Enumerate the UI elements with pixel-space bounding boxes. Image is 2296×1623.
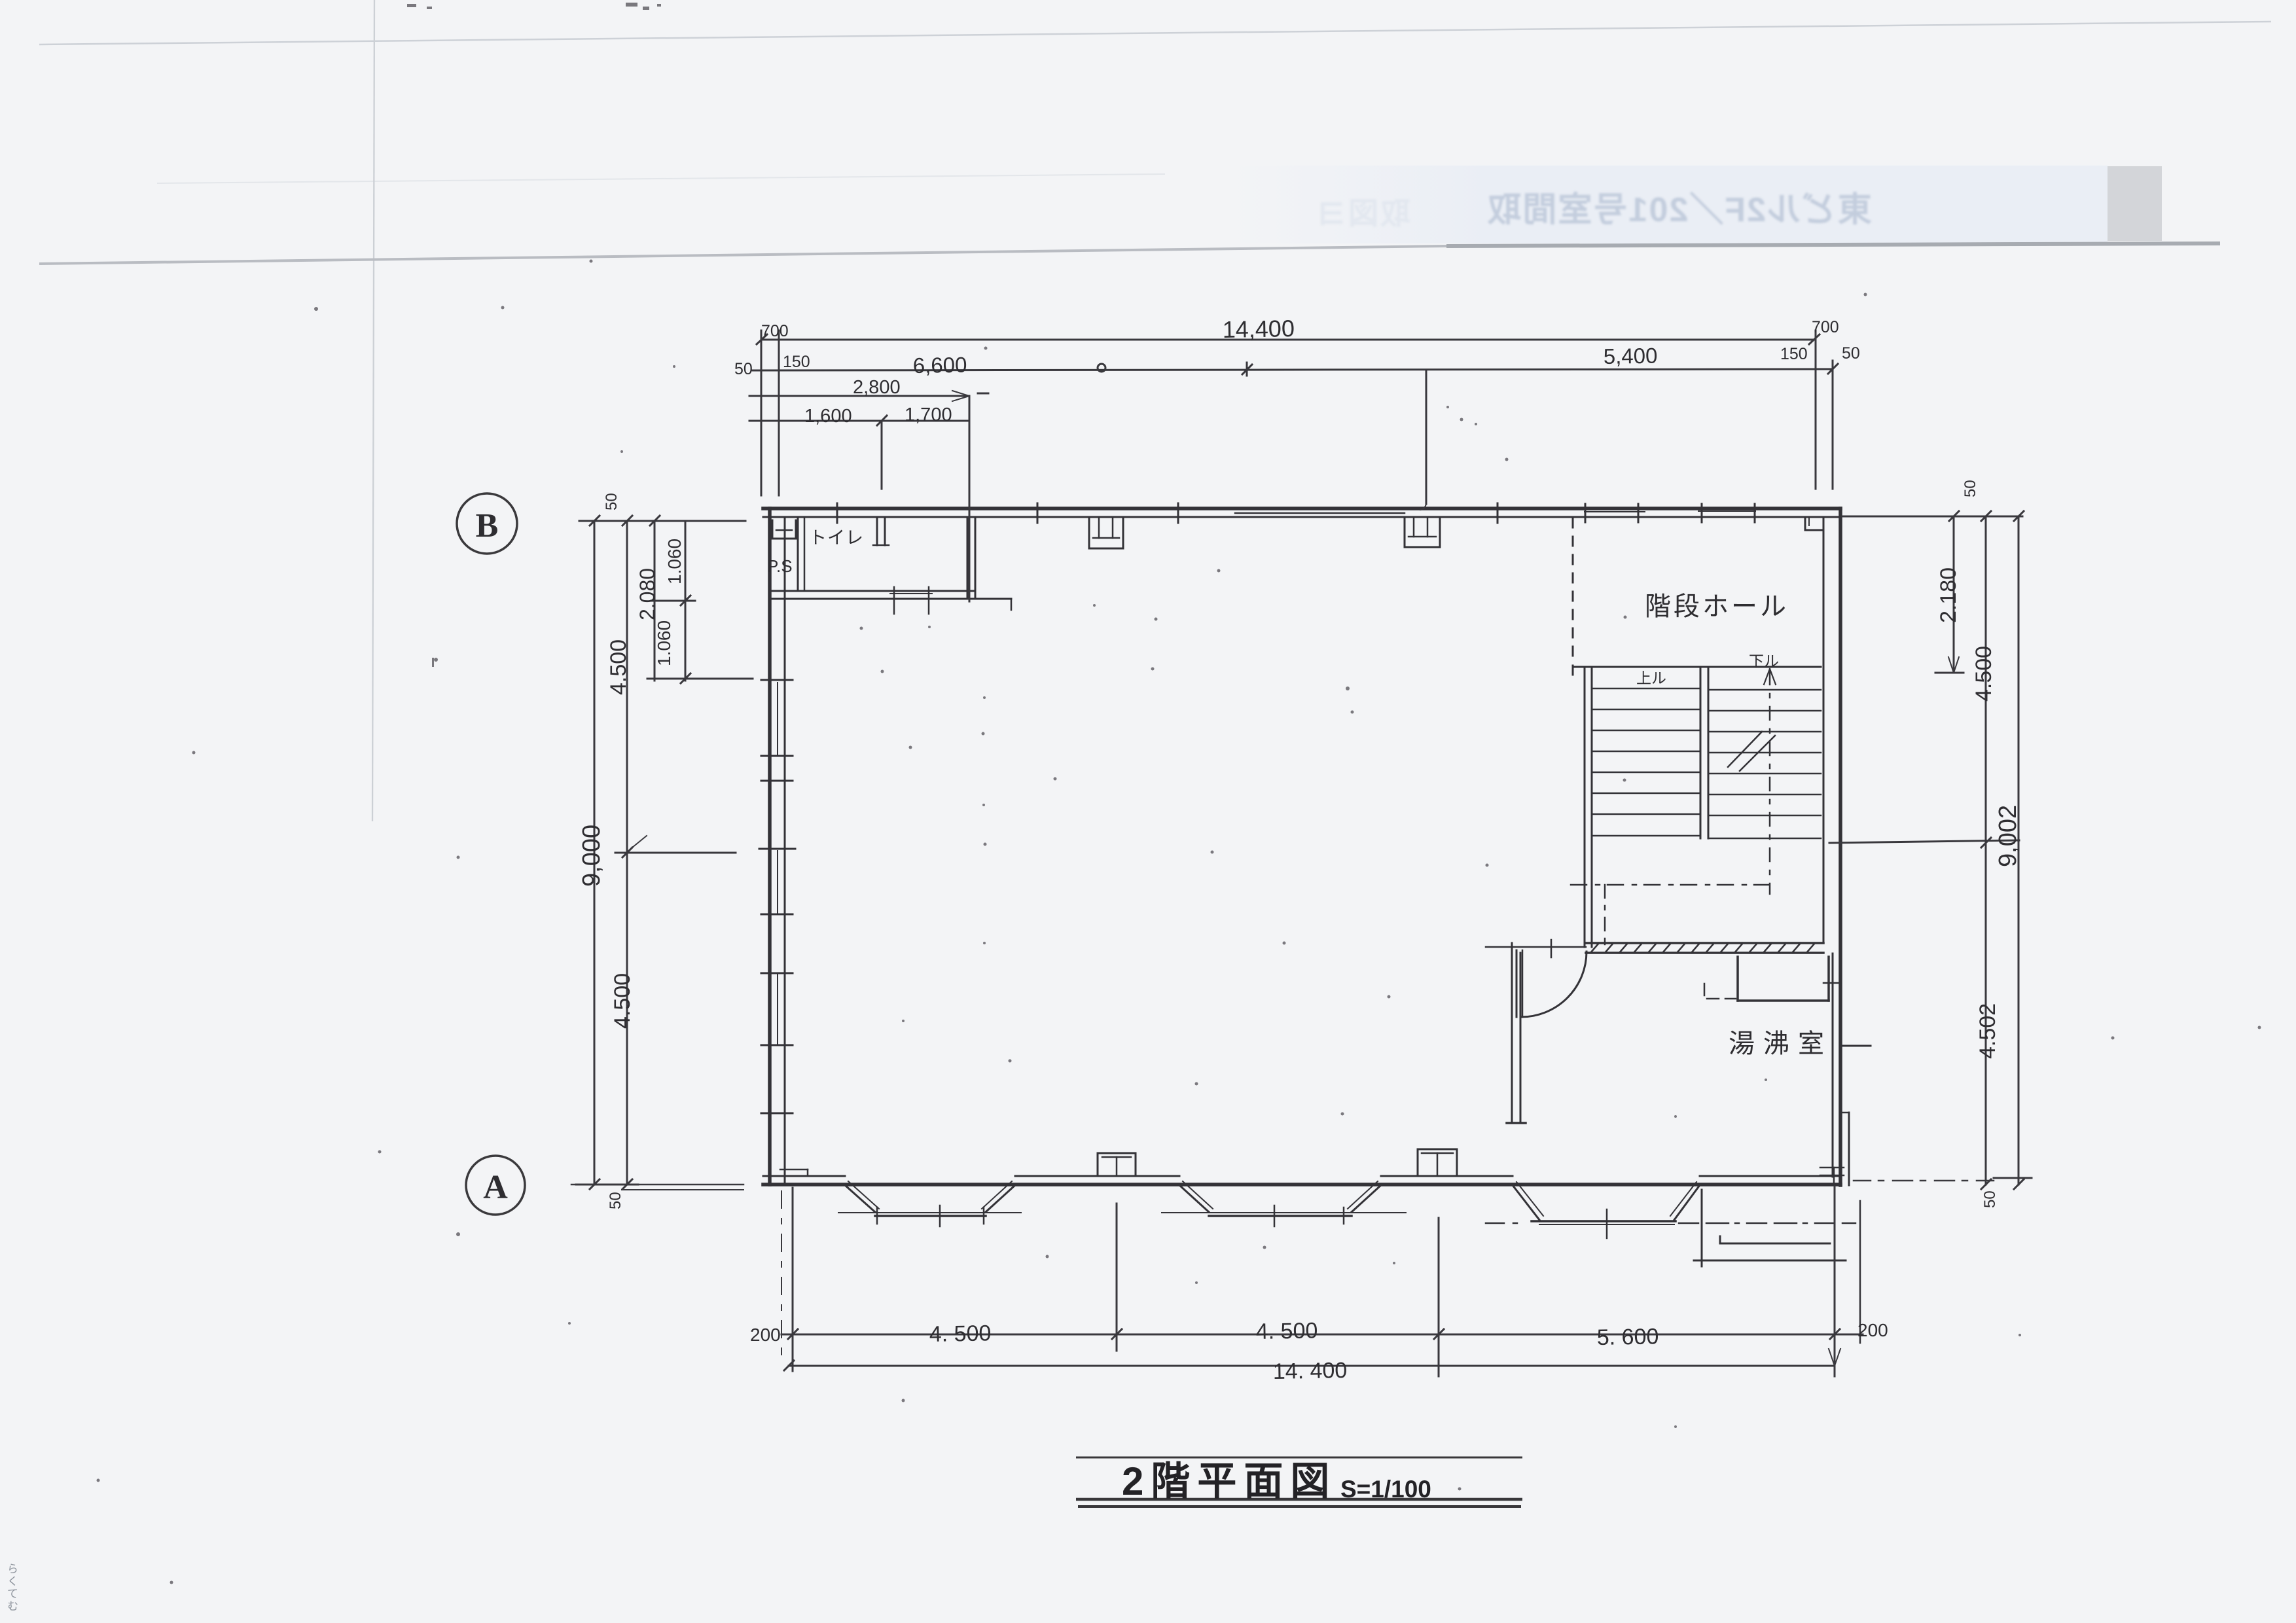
svg-text:1.060: 1.060: [654, 620, 674, 666]
svg-text:50: 50: [607, 1192, 624, 1209]
svg-text:700: 700: [1812, 318, 1839, 336]
svg-text:4. 500: 4. 500: [1255, 1318, 1318, 1344]
svg-text:4. 500: 4. 500: [929, 1321, 991, 1347]
svg-text:2階平面図: 2階平面図: [1122, 1459, 1336, 1503]
svg-text:200: 200: [750, 1325, 781, 1345]
svg-text:150: 150: [783, 353, 810, 371]
svg-text:6,600: 6,600: [912, 353, 967, 378]
svg-text:A: A: [483, 1169, 508, 1206]
svg-text:4.500: 4.500: [606, 639, 631, 695]
svg-text:4.500: 4.500: [1971, 646, 1996, 702]
svg-text:50: 50: [603, 493, 620, 510]
svg-text:2,800: 2,800: [853, 377, 901, 398]
svg-text:4.502: 4.502: [1975, 1003, 2000, 1059]
svg-text:4.500: 4.500: [610, 973, 635, 1029]
svg-text:150: 150: [1780, 345, 1808, 363]
svg-text:1,600: 1,600: [804, 406, 852, 427]
svg-text:2.080: 2.080: [636, 568, 659, 620]
svg-text:P.S: P.S: [767, 556, 793, 576]
svg-text:S=1/100: S=1/100: [1340, 1476, 1431, 1503]
svg-text:上ル: 上ル: [1636, 669, 1666, 687]
svg-text:50: 50: [734, 360, 753, 378]
svg-text:湯沸室: 湯沸室: [1729, 1029, 1833, 1058]
svg-text:200: 200: [1857, 1320, 1888, 1340]
svg-text:階段ホール: 階段ホール: [1645, 592, 1789, 621]
svg-text:14,400: 14,400: [1222, 315, 1295, 343]
svg-text:下ル: 下ル: [1749, 652, 1779, 669]
svg-text:9,002: 9,002: [1994, 805, 2022, 867]
svg-text:9,000: 9,000: [578, 825, 605, 887]
svg-text:2.180: 2.180: [1936, 567, 1961, 623]
svg-text:14. 400: 14. 400: [1272, 1358, 1347, 1384]
svg-text:1,700: 1,700: [905, 404, 952, 425]
svg-text:5. 600: 5. 600: [1596, 1324, 1659, 1350]
svg-text:700: 700: [761, 322, 789, 340]
svg-text:50: 50: [1981, 1190, 1999, 1208]
svg-text:トイレ: トイレ: [809, 528, 864, 548]
svg-text:50: 50: [1962, 480, 1979, 497]
svg-text:50: 50: [1842, 344, 1860, 363]
svg-text:B: B: [476, 507, 499, 544]
svg-text:5,400: 5,400: [1603, 344, 1657, 368]
svg-text:1.060: 1.060: [664, 539, 685, 584]
